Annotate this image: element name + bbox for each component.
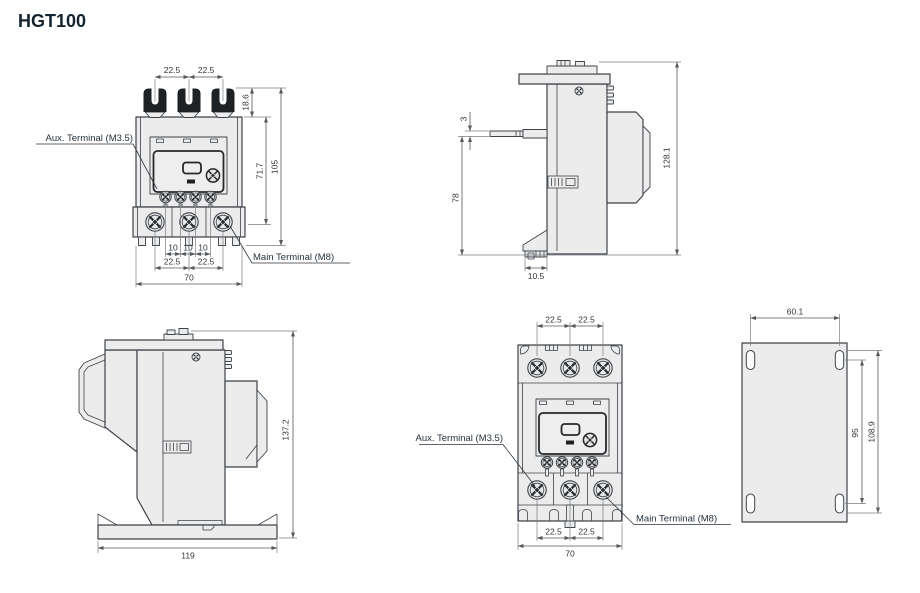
- contactor-terminal-screw: [561, 359, 579, 377]
- foot-flange: [523, 230, 547, 251]
- mounting-slot: [835, 494, 843, 513]
- dimension-label: 71.7: [255, 162, 265, 179]
- front-view: 22.5 22.5 18.6 71.7 105 10 10 10 22.5: [36, 65, 350, 287]
- main-terminal-screw: [528, 481, 546, 499]
- dimension-label: 10: [183, 243, 193, 253]
- front-view-geometry: [133, 79, 245, 246]
- dimension-label: 137.2: [281, 419, 291, 441]
- dimension-label: 22.5: [164, 257, 181, 267]
- aux-terminal-screw: [175, 191, 186, 202]
- test-pin: [490, 130, 547, 139]
- main-terminal-callout: Main Terminal (M8): [606, 497, 731, 525]
- din-rail-tab: [163, 441, 191, 453]
- aux-terminal-screw: [160, 191, 171, 202]
- main-terminal-screw: [146, 213, 164, 231]
- dimension-label: 22.5: [545, 527, 562, 537]
- control-panel: [536, 399, 609, 456]
- side-housing-block: [105, 350, 137, 452]
- front-view-mounted: 22.5 22.5 22.5 22.5 70 Aux. Terminal (M3…: [416, 315, 731, 559]
- dimension-label: 22.5: [198, 257, 215, 267]
- dimension-drawing: HGT100: [0, 0, 920, 593]
- contactor-terminal-screw: [528, 359, 546, 377]
- dial-housing: [225, 381, 257, 467]
- control-panel: [150, 137, 227, 194]
- dimension-label: 95: [850, 428, 860, 438]
- dimension-label: 10.5: [528, 271, 545, 281]
- aux-terminal-screw: [556, 457, 567, 468]
- dimension-label: 108.9: [867, 421, 877, 443]
- top-cap: [519, 74, 610, 84]
- callout-label: Aux. Terminal (M3.5): [416, 433, 503, 444]
- dimension-label: 18.6: [241, 94, 251, 111]
- side-mounted-geometry: [79, 329, 277, 540]
- mounting-plate-view: 60.1 95 108.9: [742, 307, 882, 523]
- callout-label: Aux. Terminal (M3.5): [46, 133, 133, 144]
- din-rail-tab: [548, 176, 578, 188]
- top-connector: [164, 329, 193, 341]
- dimension-label: 10: [168, 243, 178, 253]
- adjust-dial-icon: [206, 169, 219, 182]
- top-cap: [105, 340, 223, 350]
- contactor-terminal-screw: [594, 359, 612, 377]
- aux-terminal-callout: Aux. Terminal (M3.5): [416, 433, 535, 486]
- side-view-din-mounted: 137.2 119: [79, 329, 297, 561]
- mounting-base: [98, 525, 277, 539]
- dimension-label: 128.1: [662, 147, 672, 169]
- dimension-label: 22.5: [578, 315, 595, 325]
- callout-label: Main Terminal (M8): [253, 252, 334, 263]
- dimension-label: 3: [459, 116, 469, 121]
- aux-terminal-screw: [190, 191, 201, 202]
- side-view-geometry: [490, 61, 650, 260]
- mounting-slot: [746, 494, 754, 513]
- dimension-label: 22.5: [578, 527, 595, 537]
- main-terminal-callout: Main Terminal (M8): [230, 226, 350, 263]
- dimension-label: 105: [270, 160, 280, 174]
- dial-housing: [607, 112, 643, 203]
- dimension-label: 119: [181, 551, 195, 561]
- aux-terminal-screw: [205, 191, 216, 202]
- reset-button: [187, 180, 195, 184]
- aux-terminal-screw: [571, 457, 582, 468]
- housing-screw: [575, 87, 583, 95]
- relay-body-side: [547, 84, 607, 254]
- dimension-label: 10: [198, 243, 208, 253]
- main-terminal-screw: [214, 213, 232, 231]
- dimension-label: 70: [184, 273, 194, 283]
- page-title: HGT100: [18, 11, 86, 31]
- mounting-slot: [746, 351, 754, 370]
- dimension-label: 70: [565, 549, 575, 559]
- mounting-plate: [742, 343, 847, 522]
- adjust-dial-icon: [583, 433, 596, 446]
- callout-label: Main Terminal (M8): [636, 514, 717, 525]
- dimension-label: 60.1: [787, 307, 804, 317]
- dimension-label: 22.5: [198, 65, 215, 75]
- reset-button: [566, 441, 574, 445]
- indicator-window: [562, 424, 580, 435]
- dimension-label: 22.5: [545, 315, 562, 325]
- dimension-label: 78: [451, 193, 461, 203]
- indicator-window: [183, 163, 201, 174]
- main-terminal-screw: [561, 481, 579, 499]
- main-terminal-screw: [594, 481, 612, 499]
- side-view: 3 78 128.1 10.5: [451, 61, 682, 282]
- housing-screw: [192, 353, 200, 361]
- mounting-slot: [835, 351, 843, 370]
- dimension-label: 22.5: [164, 65, 181, 75]
- relay-body-side: [137, 350, 225, 525]
- aux-terminal-screw: [541, 457, 552, 468]
- top-connector: [547, 61, 597, 75]
- aux-terminal-screw: [586, 457, 597, 468]
